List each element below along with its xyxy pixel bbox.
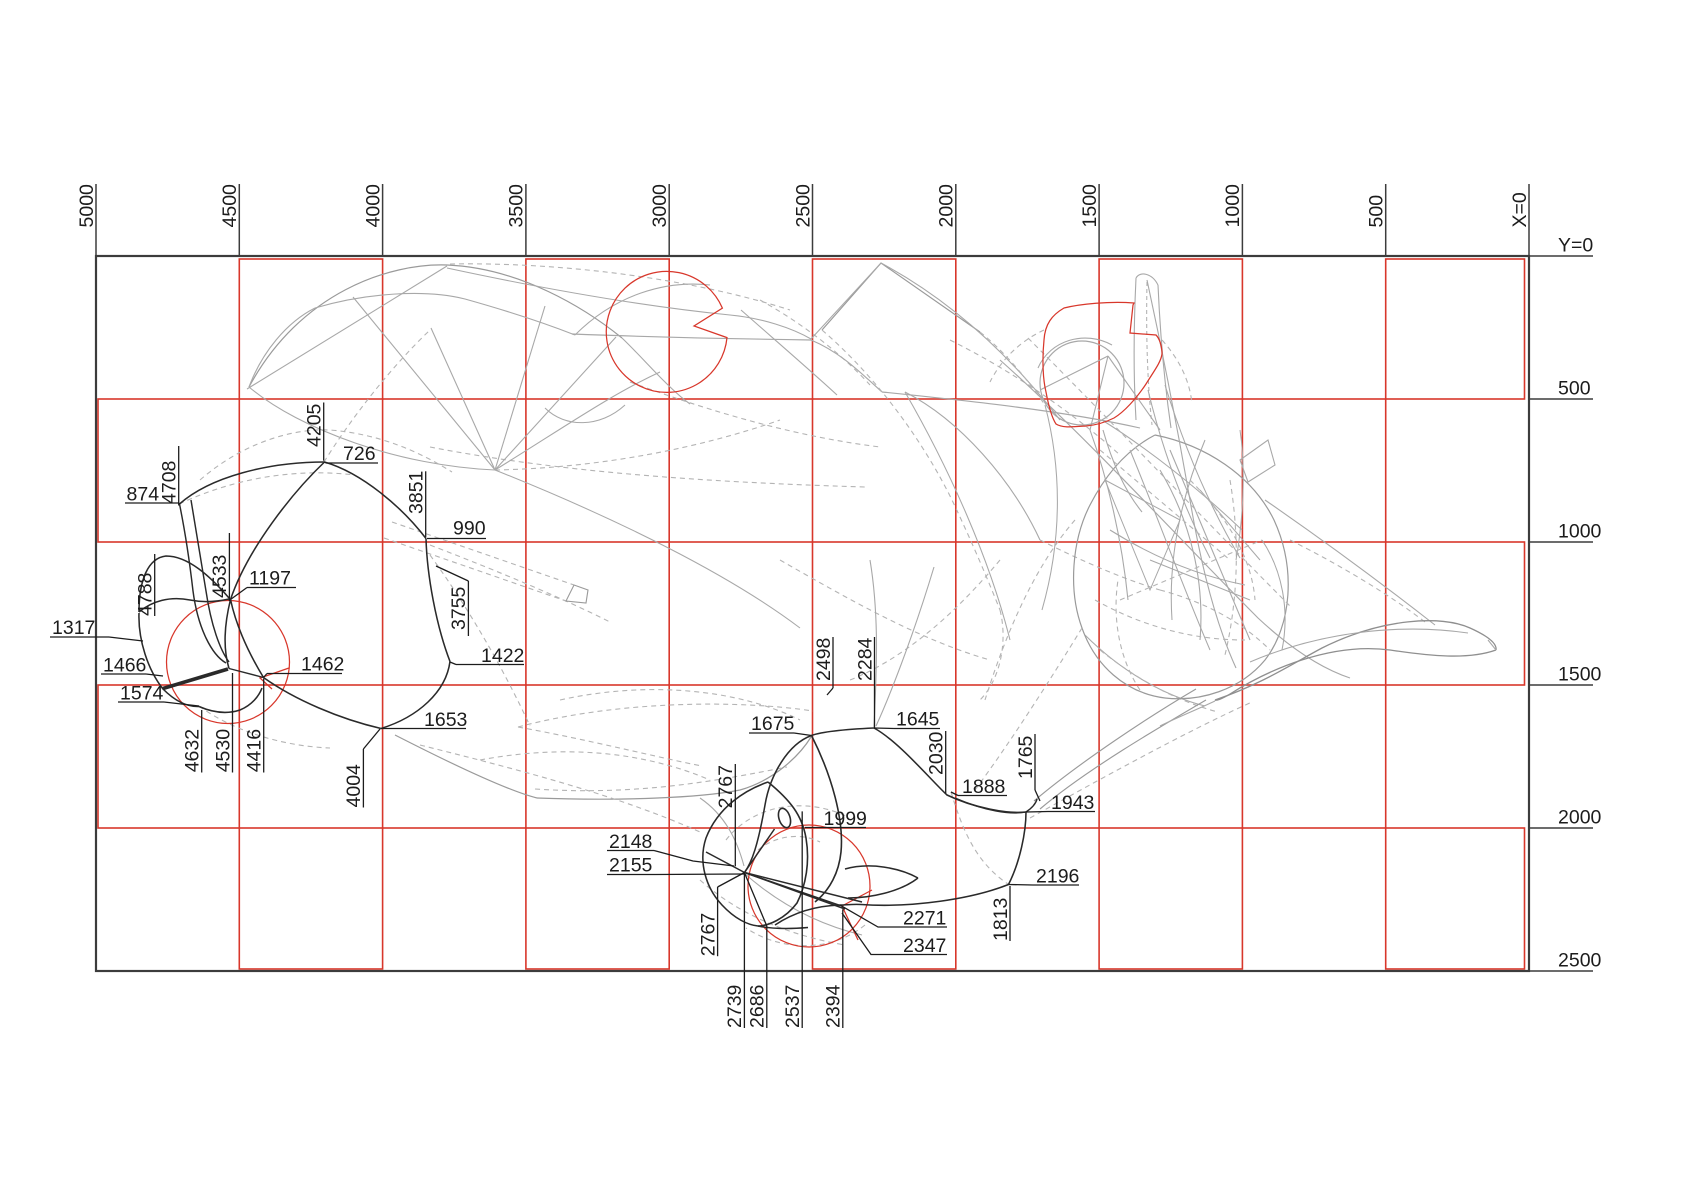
svg-text:2500: 2500 — [1558, 950, 1602, 972]
svg-text:1574: 1574 — [120, 683, 164, 705]
svg-text:500: 500 — [1558, 378, 1591, 400]
svg-text:1500: 1500 — [1558, 664, 1602, 686]
svg-text:3500: 3500 — [506, 184, 528, 228]
svg-text:990: 990 — [453, 518, 486, 540]
svg-text:874: 874 — [127, 484, 160, 506]
svg-text:4000: 4000 — [362, 184, 384, 228]
svg-text:2000: 2000 — [936, 184, 958, 228]
svg-text:2739: 2739 — [724, 985, 746, 1028]
svg-text:4205: 4205 — [304, 403, 326, 447]
svg-text:2500: 2500 — [792, 184, 814, 228]
svg-text:Y=0: Y=0 — [1558, 235, 1593, 257]
svg-text:4533: 4533 — [209, 555, 231, 598]
svg-text:4530: 4530 — [212, 729, 234, 773]
svg-text:1765: 1765 — [1015, 735, 1037, 779]
svg-text:4788: 4788 — [135, 573, 157, 616]
svg-text:1466: 1466 — [103, 655, 146, 677]
svg-text:1653: 1653 — [424, 709, 467, 731]
svg-text:2394: 2394 — [823, 984, 845, 1028]
svg-text:2271: 2271 — [903, 908, 946, 930]
svg-text:4004: 4004 — [343, 764, 365, 808]
svg-text:1000: 1000 — [1558, 521, 1602, 543]
svg-text:1000: 1000 — [1222, 184, 1244, 228]
svg-text:500: 500 — [1366, 195, 1388, 228]
svg-text:2155: 2155 — [609, 855, 653, 877]
svg-text:2537: 2537 — [782, 985, 804, 1028]
svg-text:2767: 2767 — [697, 913, 719, 956]
svg-text:2347: 2347 — [903, 935, 946, 957]
svg-text:2498: 2498 — [813, 638, 835, 681]
svg-text:1943: 1943 — [1051, 792, 1094, 814]
svg-text:2767: 2767 — [715, 765, 737, 808]
svg-text:4416: 4416 — [244, 729, 266, 772]
svg-text:2196: 2196 — [1036, 866, 1079, 888]
svg-text:1999: 1999 — [824, 808, 867, 830]
svg-text:1675: 1675 — [751, 713, 795, 735]
svg-text:2284: 2284 — [854, 637, 876, 681]
svg-text:4500: 4500 — [219, 184, 241, 228]
svg-text:2686: 2686 — [747, 985, 769, 1028]
svg-text:2148: 2148 — [609, 831, 652, 853]
svg-text:1317: 1317 — [52, 617, 95, 639]
svg-text:3755: 3755 — [448, 586, 470, 630]
svg-text:1422: 1422 — [481, 645, 524, 667]
svg-text:1500: 1500 — [1079, 184, 1101, 228]
svg-text:1888: 1888 — [962, 776, 1005, 798]
svg-text:1197: 1197 — [249, 568, 291, 590]
svg-text:3000: 3000 — [649, 184, 671, 228]
svg-text:1462: 1462 — [301, 654, 344, 676]
svg-text:X=0: X=0 — [1509, 192, 1531, 227]
svg-text:2000: 2000 — [1558, 807, 1602, 829]
svg-text:4708: 4708 — [159, 461, 181, 504]
svg-text:2030: 2030 — [926, 731, 948, 775]
svg-text:3851: 3851 — [406, 471, 428, 514]
svg-text:4632: 4632 — [182, 729, 204, 772]
svg-text:5000: 5000 — [76, 184, 98, 228]
svg-text:1645: 1645 — [896, 709, 940, 731]
svg-text:1813: 1813 — [990, 898, 1012, 941]
svg-text:726: 726 — [343, 443, 376, 465]
